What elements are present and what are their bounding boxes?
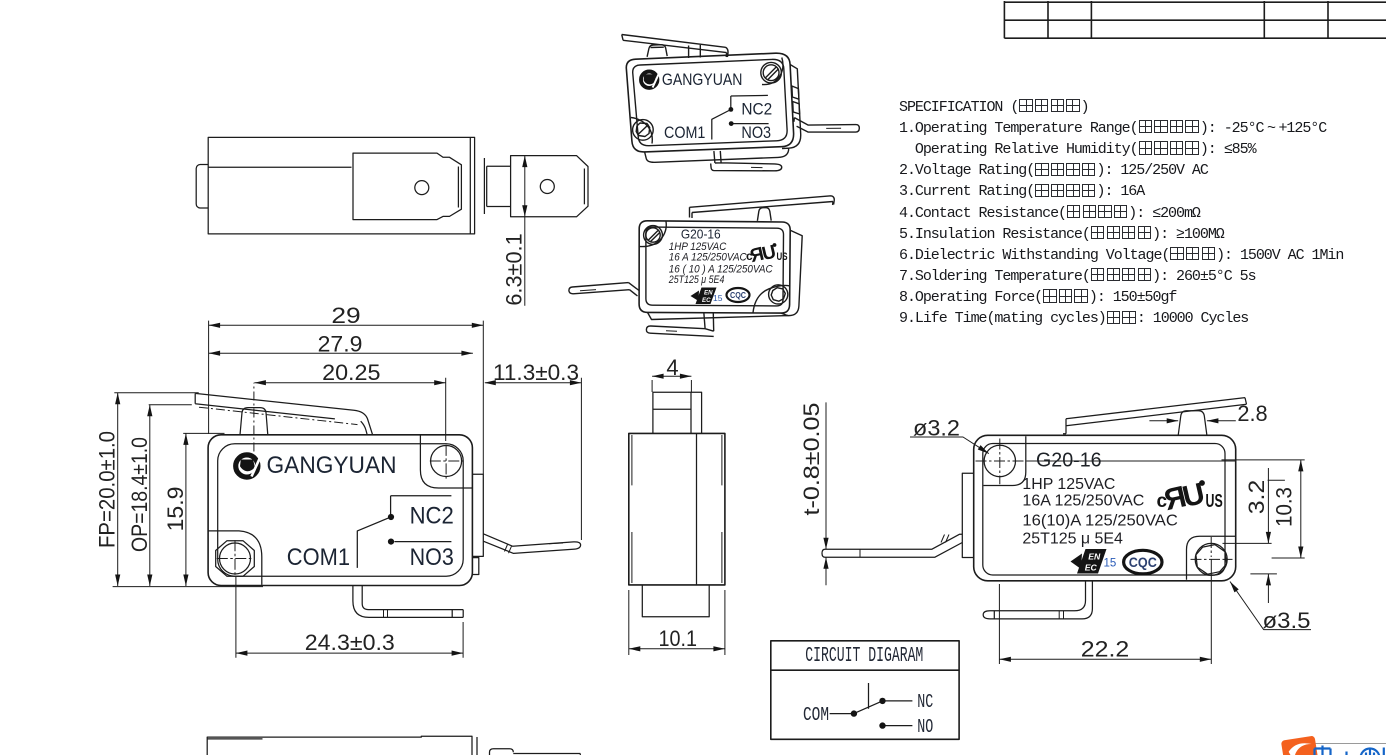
svg-text:GANGYUAN: GANGYUAN: [267, 452, 397, 479]
svg-text:25T125 μ 5E4: 25T125 μ 5E4: [668, 274, 724, 286]
svg-text:COM1: COM1: [664, 124, 705, 142]
svg-text:EN: EN: [704, 290, 713, 296]
svg-text:15: 15: [713, 293, 723, 303]
svg-text:EN: EN: [1088, 552, 1101, 562]
svg-text:15: 15: [1104, 558, 1117, 570]
svg-text:6.3±0.1: 6.3±0.1: [502, 233, 527, 305]
svg-text:t-0.8±0.05: t-0.8±0.05: [799, 403, 824, 516]
svg-text:NO: NO: [917, 716, 933, 738]
svg-text:COM: COM: [803, 704, 829, 726]
svg-text:GANGYUAN: GANGYUAN: [662, 71, 743, 89]
svg-text:ø3.5: ø3.5: [1263, 608, 1311, 633]
svg-text:CQC: CQC: [730, 290, 746, 300]
svg-text:16A 125/250VAC: 16A 125/250VAC: [1022, 493, 1144, 510]
svg-text:EC: EC: [702, 298, 711, 304]
svg-text:NC2: NC2: [741, 101, 772, 119]
svg-text:10.3: 10.3: [1272, 487, 1297, 527]
svg-text:ø3.2: ø3.2: [913, 415, 960, 440]
svg-text:10.1: 10.1: [659, 626, 698, 651]
svg-text:G20-16: G20-16: [1036, 449, 1102, 471]
svg-text:G20-16: G20-16: [681, 227, 721, 242]
svg-text:US: US: [1206, 491, 1223, 511]
svg-text:EC: EC: [1085, 563, 1098, 573]
svg-text:16 A 125/250VAC: 16 A 125/250VAC: [669, 251, 747, 263]
svg-text:4: 4: [666, 355, 678, 380]
svg-text:24.3±0.3: 24.3±0.3: [305, 630, 395, 655]
svg-text:NC2: NC2: [410, 502, 454, 529]
svg-text:20.25: 20.25: [322, 360, 380, 385]
svg-text:FP=20.0±1.0: FP=20.0±1.0: [95, 431, 120, 548]
svg-text:22.2: 22.2: [1081, 637, 1130, 662]
svg-text:OP=18.4±1.0: OP=18.4±1.0: [127, 437, 152, 552]
svg-text:1HP 125VAC: 1HP 125VAC: [1022, 476, 1115, 493]
svg-text:25T125 μ 5E4: 25T125 μ 5E4: [1022, 531, 1123, 548]
svg-text:3.2: 3.2: [1244, 480, 1269, 515]
svg-text:2.8: 2.8: [1237, 401, 1267, 426]
svg-text:CIRCUIT DIGARAM: CIRCUIT DIGARAM: [805, 645, 923, 668]
svg-text:NO3: NO3: [410, 544, 454, 571]
svg-text:NO3: NO3: [741, 124, 771, 142]
svg-text:29: 29: [331, 303, 360, 328]
svg-text:16(10)A 125/250VAC: 16(10)A 125/250VAC: [1022, 512, 1177, 529]
svg-text:11.3±0.3: 11.3±0.3: [493, 360, 579, 385]
svg-text:US: US: [777, 251, 788, 263]
svg-text:CQC: CQC: [1129, 555, 1157, 570]
svg-text:COM1: COM1: [287, 544, 350, 571]
svg-text:NC: NC: [917, 691, 933, 713]
svg-text:15.9: 15.9: [163, 487, 188, 532]
svg-text:27.9: 27.9: [318, 331, 363, 356]
